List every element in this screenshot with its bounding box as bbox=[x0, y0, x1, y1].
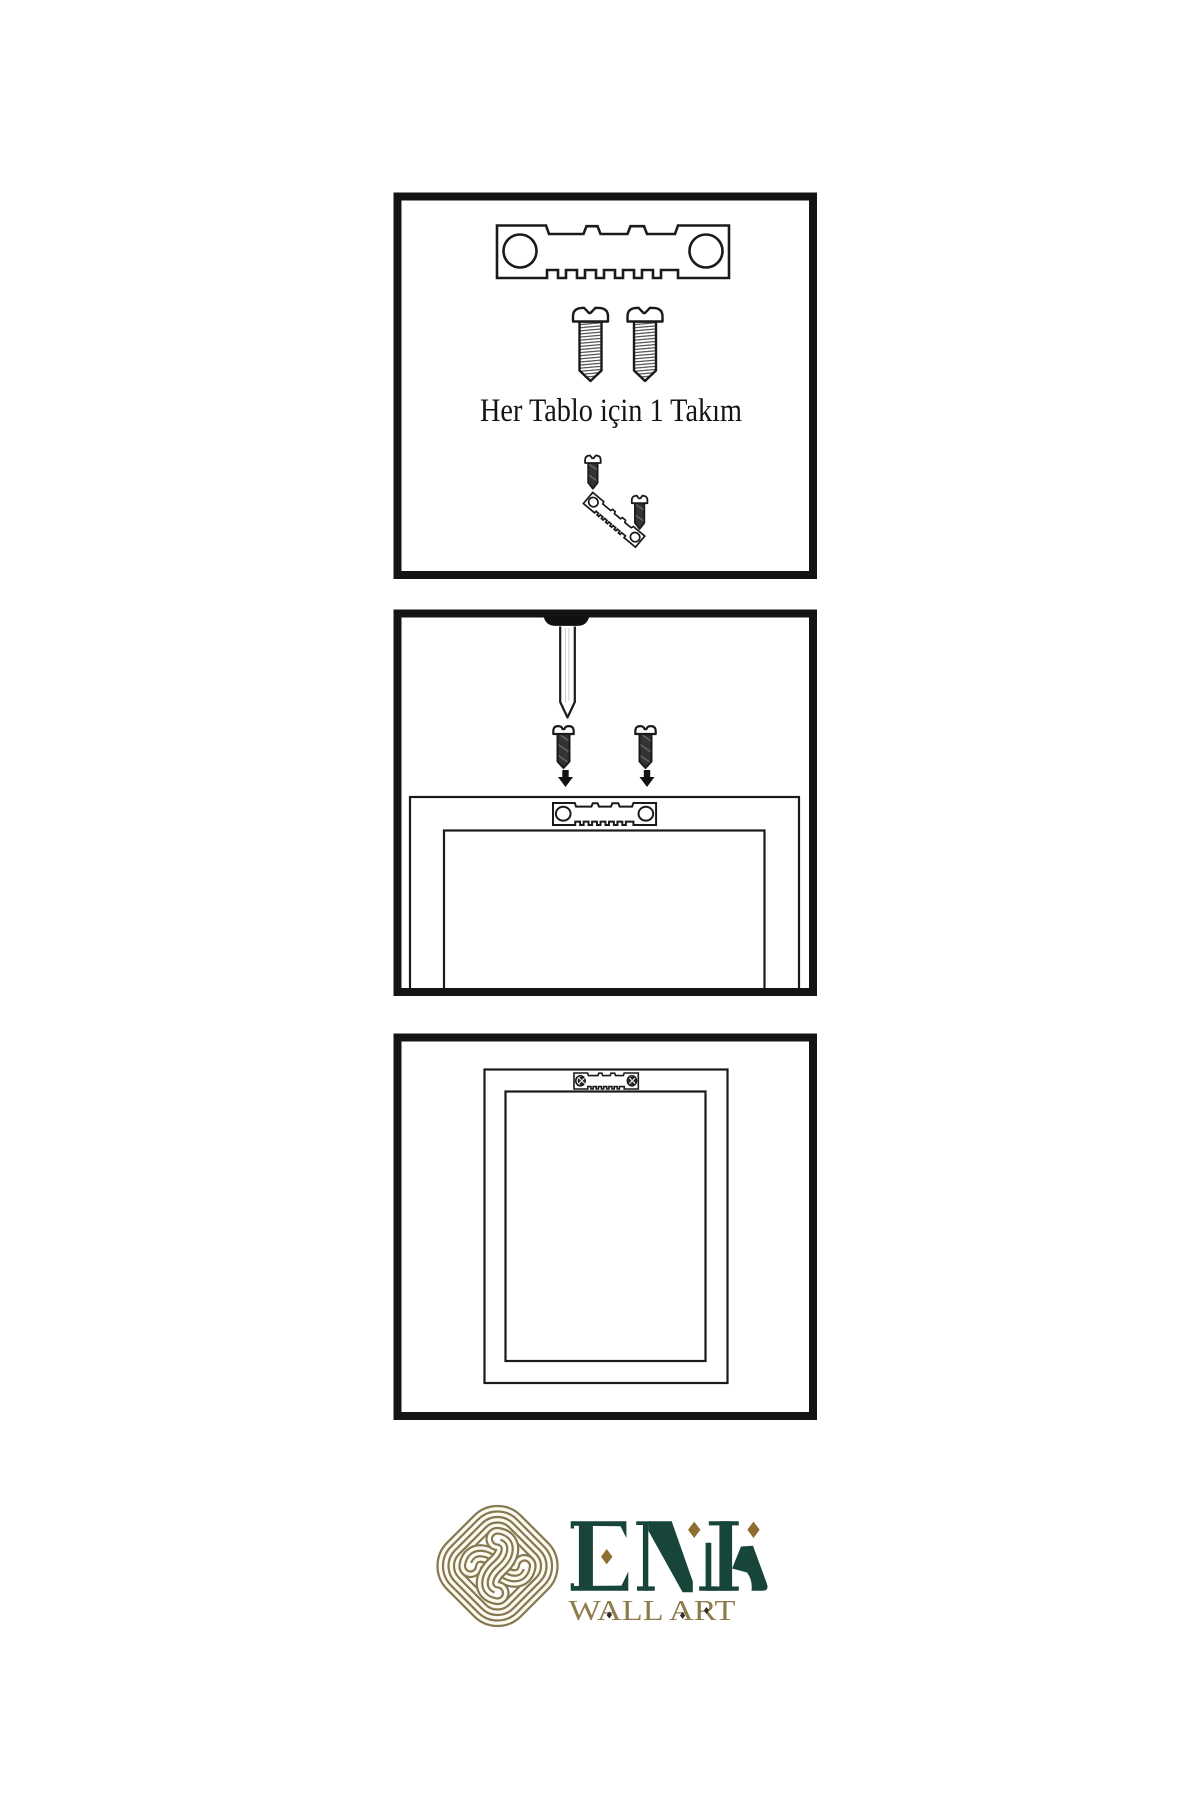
svg-text:Her Tablo için 1 Takım: Her Tablo için 1 Takım bbox=[480, 393, 742, 429]
svg-text:WALL ART: WALL ART bbox=[569, 1596, 736, 1627]
